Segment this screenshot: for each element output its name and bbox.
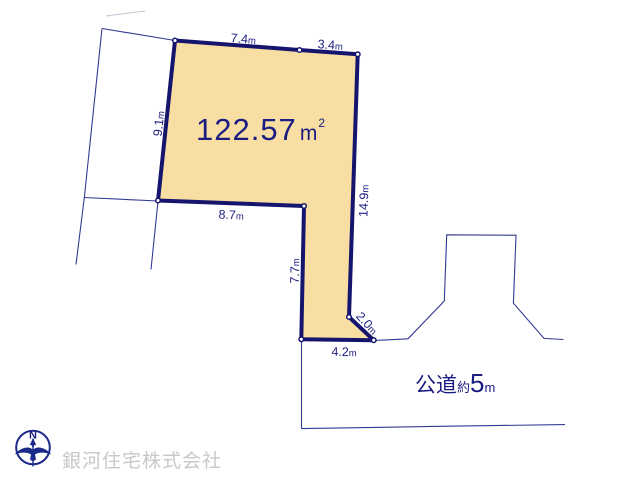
compass-north-indicator: N bbox=[15, 430, 52, 467]
site-plan-page: 122.57m2 7.4m 3.4m 9.1m 14.9m 8.7m 7.7m … bbox=[0, 0, 640, 480]
neighbor-left-west-edge bbox=[76, 29, 102, 265]
neighbor-left-top-edge bbox=[102, 29, 175, 41]
vertex-dot bbox=[302, 204, 307, 209]
faint-boundary-line bbox=[106, 11, 145, 16]
vertex-dot bbox=[347, 315, 352, 320]
main-parcel-shape bbox=[158, 41, 374, 341]
dimension-label-left: 9.1m bbox=[151, 110, 168, 137]
road-width: 5 bbox=[470, 368, 484, 398]
vertex-dot bbox=[299, 337, 304, 342]
vertex-dot bbox=[371, 338, 376, 343]
vertex-dot bbox=[173, 38, 178, 43]
road-type: 公道 bbox=[415, 374, 457, 397]
boundary-extension-left bbox=[151, 201, 158, 270]
dimension-label-top-right: 3.4m bbox=[317, 37, 343, 53]
dimension-label-inner-left: 7.7m bbox=[288, 258, 302, 284]
neighbor-left-division-line bbox=[84, 198, 158, 202]
dimension-label-inner-step: 8.7m bbox=[218, 207, 244, 222]
company-watermark: 銀河住宅株式会社 bbox=[62, 450, 222, 472]
neighbor-parcel-left bbox=[76, 29, 175, 270]
road-unit: m bbox=[484, 380, 495, 395]
area-unit-sup: 2 bbox=[318, 116, 326, 130]
vertex-dot bbox=[297, 48, 302, 53]
road-label: 公道約5m bbox=[415, 368, 495, 398]
road-edge-line bbox=[302, 425, 566, 429]
dimension-label-bottom: 4.2m bbox=[331, 345, 357, 359]
vertex-dot bbox=[355, 52, 360, 57]
area-value: 122.57 bbox=[196, 112, 297, 147]
dimension-label-top-left: 7.4m bbox=[230, 31, 256, 47]
area-unit: m bbox=[300, 122, 319, 145]
vertex-dot bbox=[156, 198, 161, 203]
road-approx: 約 bbox=[457, 380, 470, 395]
bird-head-icon bbox=[32, 444, 35, 447]
neighbor-parcel-right bbox=[374, 235, 564, 341]
site-plan-canvas: 122.57m2 7.4m 3.4m 9.1m 14.9m 8.7m 7.7m … bbox=[0, 0, 640, 480]
dimension-label-right: 14.9m bbox=[356, 184, 371, 217]
